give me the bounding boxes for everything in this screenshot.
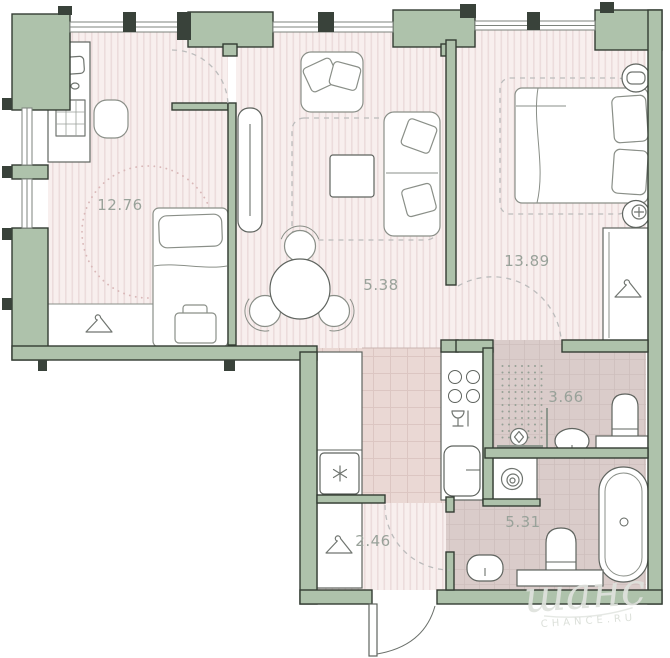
mullion-1 [123, 12, 136, 32]
wall-partition-room1 [228, 103, 236, 345]
desk-chair [94, 100, 128, 138]
wall-right [648, 10, 662, 604]
bed-pillow-2 [612, 149, 649, 195]
bed-pillow-1 [611, 95, 648, 143]
wall-bath-divider [485, 448, 648, 458]
entry-door-leaf [369, 604, 377, 656]
wall-stub-room1 [172, 103, 228, 110]
wall-kitchen-bath [483, 348, 493, 503]
label-bath-large: 5.31 [505, 513, 540, 531]
coffee-table [330, 155, 374, 197]
entry-opening [373, 590, 436, 604]
vanity-small-bath [596, 436, 648, 449]
pillow [158, 214, 222, 248]
wall-left-pier-bottom [12, 228, 48, 360]
label-hall: 2.46 [355, 532, 390, 550]
entry-door-arc [377, 606, 435, 654]
wall-partition-bedroom [446, 40, 456, 285]
nightstand-1 [622, 64, 650, 92]
floor-plan-canvas: 12.76 5.38 13.89 3.66 2.46 5.31 шанс CHA… [0, 0, 670, 658]
watermark: шанс CHANCE.RU [522, 564, 647, 631]
label-bedroom: 13.89 [504, 252, 549, 270]
wall-notch-1 [223, 44, 237, 56]
doorway-bath-small [493, 340, 562, 352]
label-room1: 12.76 [97, 196, 142, 214]
label-bath-small: 3.66 [548, 388, 583, 406]
dining-table [270, 259, 330, 319]
kitchen-sink [444, 446, 480, 496]
mullion-3 [527, 12, 540, 30]
toilet-small-bath [612, 394, 638, 438]
doorway-bedroom [446, 285, 456, 340]
wall-bottom-left-section [12, 346, 317, 360]
wall-hall-left [300, 352, 317, 604]
mullion-2 [318, 12, 334, 32]
bed-chair-seat [175, 313, 216, 343]
wall-washer-nook [483, 499, 540, 506]
label-living: 5.38 [363, 276, 398, 294]
wall-hall-bath-top [446, 497, 454, 512]
wall-kitchen-hall [317, 495, 385, 503]
wall-hall-bath-bottom [446, 552, 454, 590]
toilet-large-bath [546, 528, 576, 572]
wall-bottom-1 [300, 590, 372, 604]
wall-corner-topleft [12, 14, 70, 110]
doorway-bath-large [446, 512, 454, 552]
pier-dark-1 [177, 12, 191, 40]
floor-plan: 12.76 5.38 13.89 3.66 2.46 5.31 шанс CHA… [0, 0, 670, 658]
wall-left-pier-mid [12, 165, 48, 179]
dining-chair-top [285, 231, 316, 262]
wall-bath-small-top-right [562, 340, 648, 352]
wall-top-pier-1 [188, 12, 273, 47]
